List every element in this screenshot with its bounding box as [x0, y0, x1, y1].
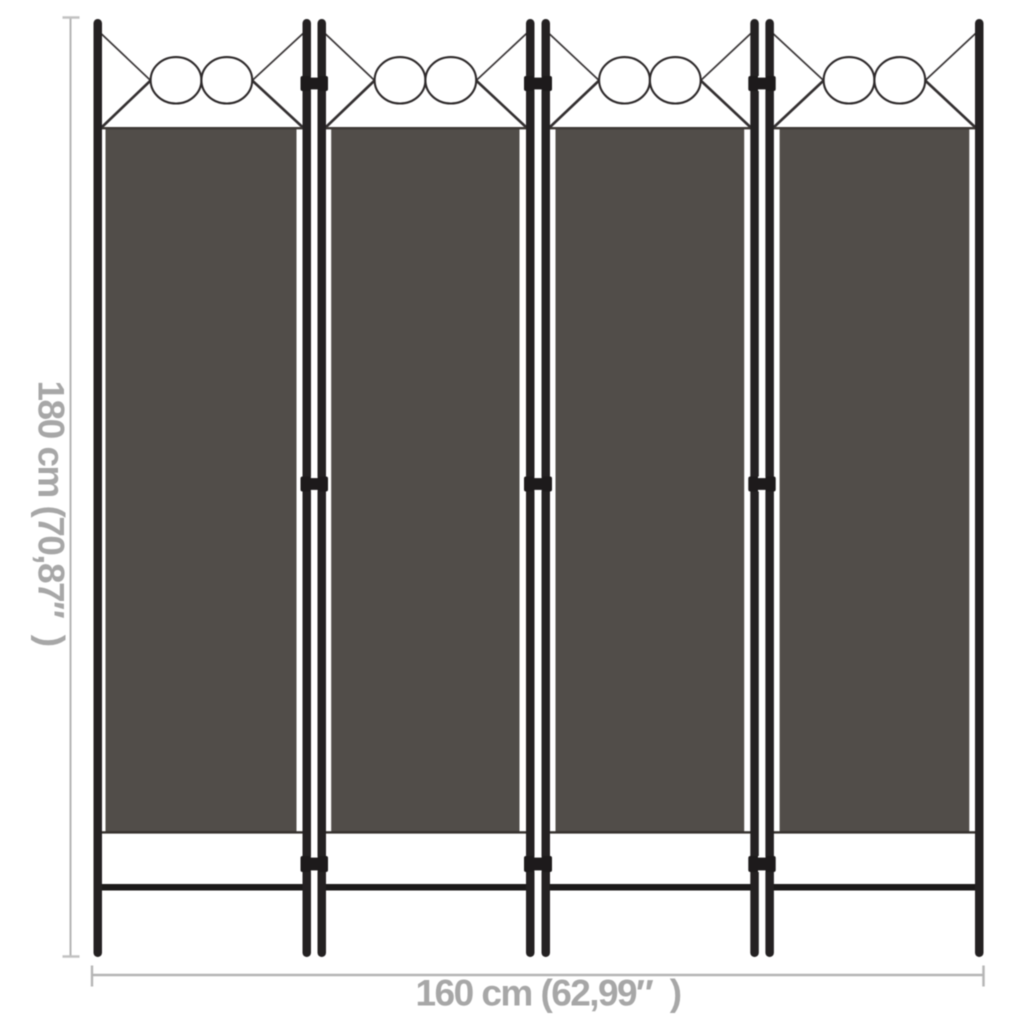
svg-text:180 cm (70,87″ ): 180 cm (70,87″ ) — [31, 381, 72, 646]
svg-text:160 cm (62,99″ ): 160 cm (62,99″ ) — [416, 973, 681, 1014]
